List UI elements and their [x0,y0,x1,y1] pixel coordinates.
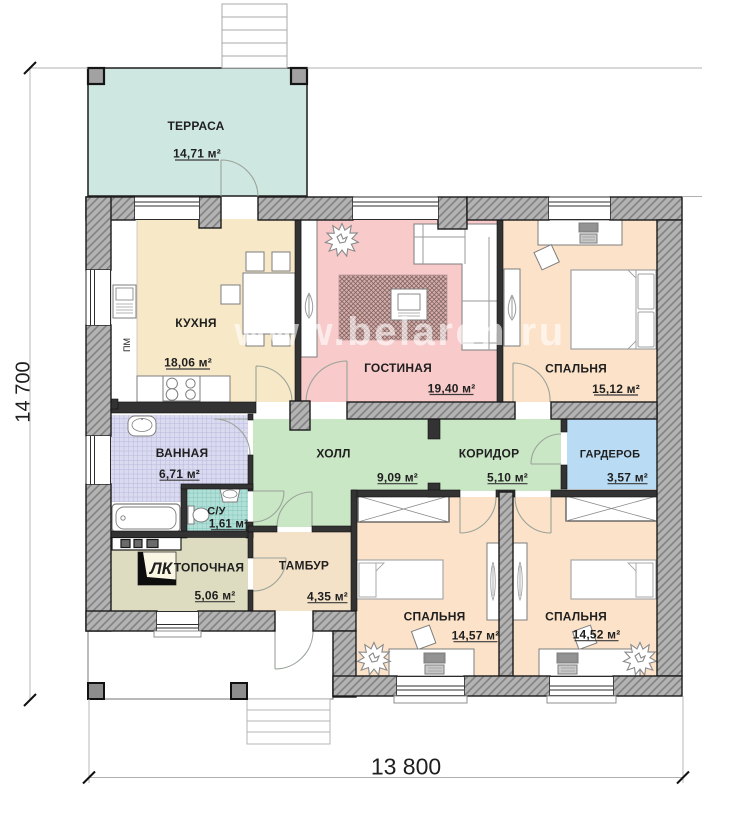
svg-text:18,06 м²: 18,06 м² [164,356,212,370]
svg-text:КУХНЯ: КУХНЯ [175,316,216,330]
svg-text:5,10 м²: 5,10 м² [487,471,528,485]
svg-text:СПАЛЬНЯ: СПАЛЬНЯ [545,361,607,375]
svg-text:15,12 м²: 15,12 м² [592,382,640,396]
svg-text:СПАЛЬНЯ: СПАЛЬНЯ [545,610,607,624]
svg-text:9,09 м²: 9,09 м² [377,471,418,485]
svg-text:6,71 м²: 6,71 м² [159,467,200,481]
svg-text:4,35 м²: 4,35 м² [307,590,348,604]
svg-text:ГАРДЕРОБ: ГАРДЕРОБ [580,449,641,461]
svg-text:3,57 м²: 3,57 м² [607,471,648,485]
svg-text:С/У: С/У [207,506,225,518]
svg-text:13 800: 13 800 [371,754,441,780]
svg-text:ГОСТИНАЯ: ГОСТИНАЯ [364,361,432,375]
svg-text:19,40 м²: 19,40 м² [428,381,476,395]
svg-text:ТЕРРАСА: ТЕРРАСА [167,119,224,133]
svg-text:КОРИДОР: КОРИДОР [459,447,520,461]
svg-text:ВАННАЯ: ВАННАЯ [156,446,209,460]
svg-text:ЛК: ЛК [148,559,174,578]
svg-text:5,06 м²: 5,06 м² [195,589,236,603]
svg-text:1,61 м²: 1,61 м² [209,519,248,531]
svg-text:ТАМБУР: ТАМБУР [279,559,329,573]
svg-text:СПАЛЬНЯ: СПАЛЬНЯ [404,610,466,624]
svg-text:14,57 м²: 14,57 м² [452,629,500,643]
svg-text:14 700: 14 700 [13,361,35,422]
svg-text:14,52 м²: 14,52 м² [573,628,621,642]
svg-text:ХОЛЛ: ХОЛЛ [316,447,350,461]
svg-text:ПМ: ПМ [122,338,132,352]
svg-text:www.belarch.ru: www.belarch.ru [233,310,565,354]
svg-text:ТОПОЧНАЯ: ТОПОЧНАЯ [174,561,244,575]
svg-text:14,71 м²: 14,71 м² [173,147,221,161]
